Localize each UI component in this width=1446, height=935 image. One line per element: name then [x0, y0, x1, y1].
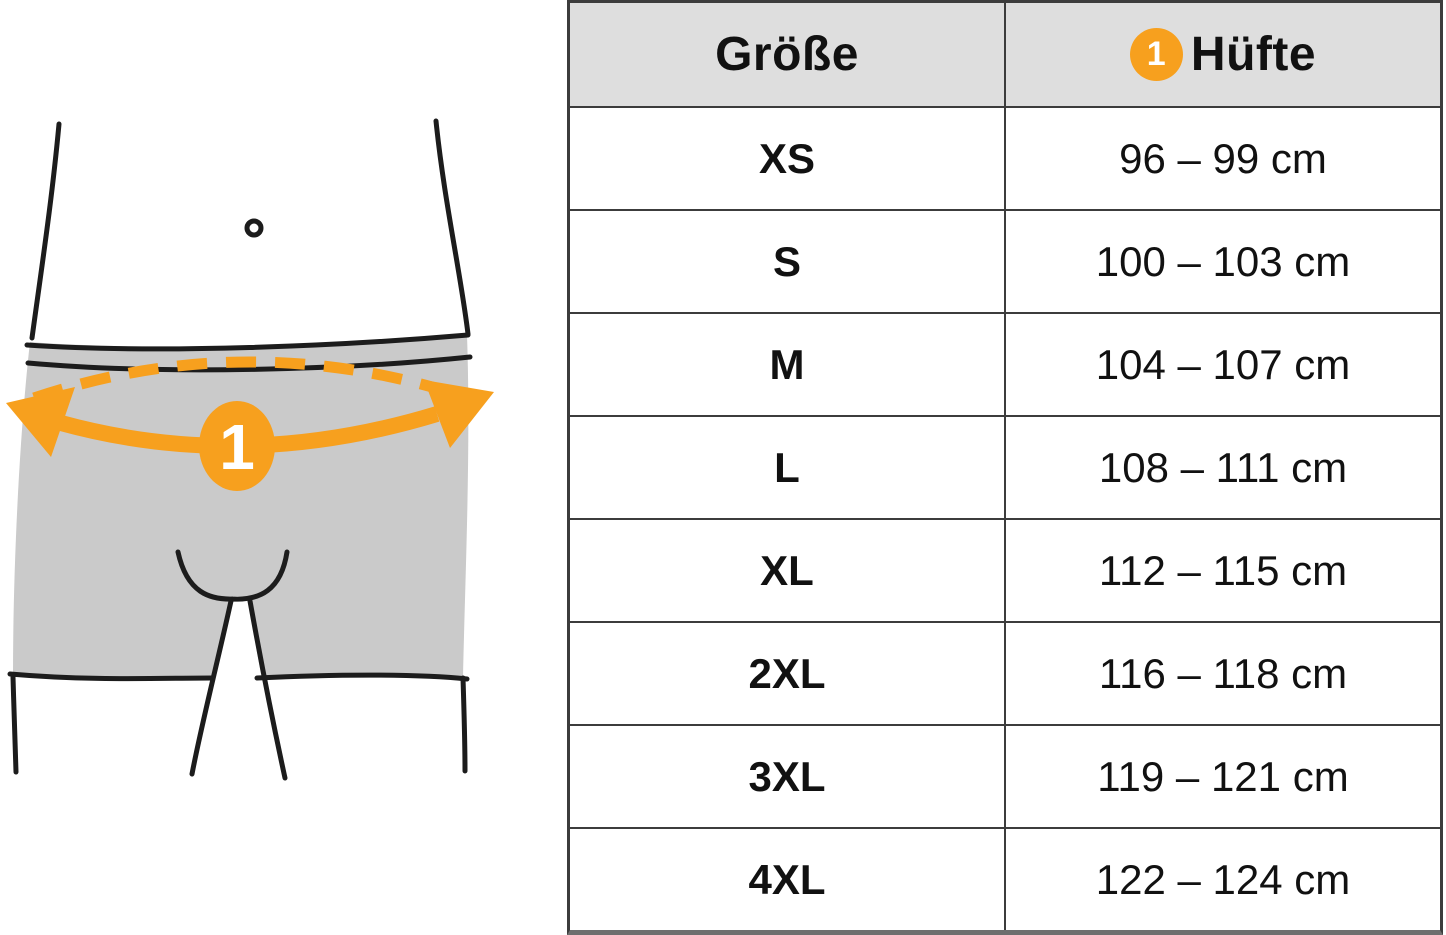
hip-range-cell: 108 – 111 cm — [1006, 417, 1440, 518]
right-leg-line — [463, 678, 465, 771]
table-row: 4XL 122 – 124 cm — [570, 827, 1440, 930]
left-leg-line — [13, 677, 16, 772]
hip-range-cell: 122 – 124 cm — [1006, 829, 1440, 930]
size-cell: 3XL — [570, 726, 1006, 827]
size-cell: XL — [570, 520, 1006, 621]
hip-marker-badge: 1 — [1130, 28, 1183, 81]
table-row: 3XL 119 – 121 cm — [570, 724, 1440, 827]
header-size-column: Größe — [570, 3, 1006, 106]
table-header-row: Größe 1 Hüfte — [570, 3, 1440, 106]
hip-range-cell: 96 – 99 cm — [1006, 108, 1440, 209]
navel-icon — [247, 221, 261, 235]
body-shorts-drawing: 1 — [0, 0, 560, 935]
hip-range-cell: 116 – 118 cm — [1006, 623, 1440, 724]
right-torso-line — [436, 121, 468, 334]
hip-range-cell: 119 – 121 cm — [1006, 726, 1440, 827]
hip-range-cell: 112 – 115 cm — [1006, 520, 1440, 621]
hip-measurement-illustration: 1 — [0, 0, 560, 935]
size-cell: S — [570, 211, 1006, 312]
table-row: L 108 – 111 cm — [570, 415, 1440, 518]
header-measure-label: Hüfte — [1191, 27, 1316, 82]
measure-marker-number: 1 — [219, 411, 255, 483]
size-cell: M — [570, 314, 1006, 415]
size-table: Größe 1 Hüfte XS 96 – 99 cm S 100 – 103 … — [567, 0, 1443, 935]
size-cell: 4XL — [570, 829, 1006, 930]
table-row: S 100 – 103 cm — [570, 209, 1440, 312]
table-body: XS 96 – 99 cm S 100 – 103 cm M 104 – 107… — [570, 106, 1440, 930]
table-row: 2XL 116 – 118 cm — [570, 621, 1440, 724]
size-chart-page: 1 Größe 1 Hüfte XS 96 – 99 cm S 100 – 10… — [0, 0, 1446, 935]
table-row: M 104 – 107 cm — [570, 312, 1440, 415]
header-measure-column: 1 Hüfte — [1006, 3, 1440, 106]
hem-line-right — [257, 675, 467, 679]
left-torso-line — [32, 124, 59, 338]
hip-range-cell: 104 – 107 cm — [1006, 314, 1440, 415]
hip-range-cell: 100 – 103 cm — [1006, 211, 1440, 312]
hip-marker-number: 1 — [1147, 35, 1166, 74]
size-cell: XS — [570, 108, 1006, 209]
table-row: XL 112 – 115 cm — [570, 518, 1440, 621]
size-cell: 2XL — [570, 623, 1006, 724]
size-cell: L — [570, 417, 1006, 518]
table-row: XS 96 – 99 cm — [570, 106, 1440, 209]
